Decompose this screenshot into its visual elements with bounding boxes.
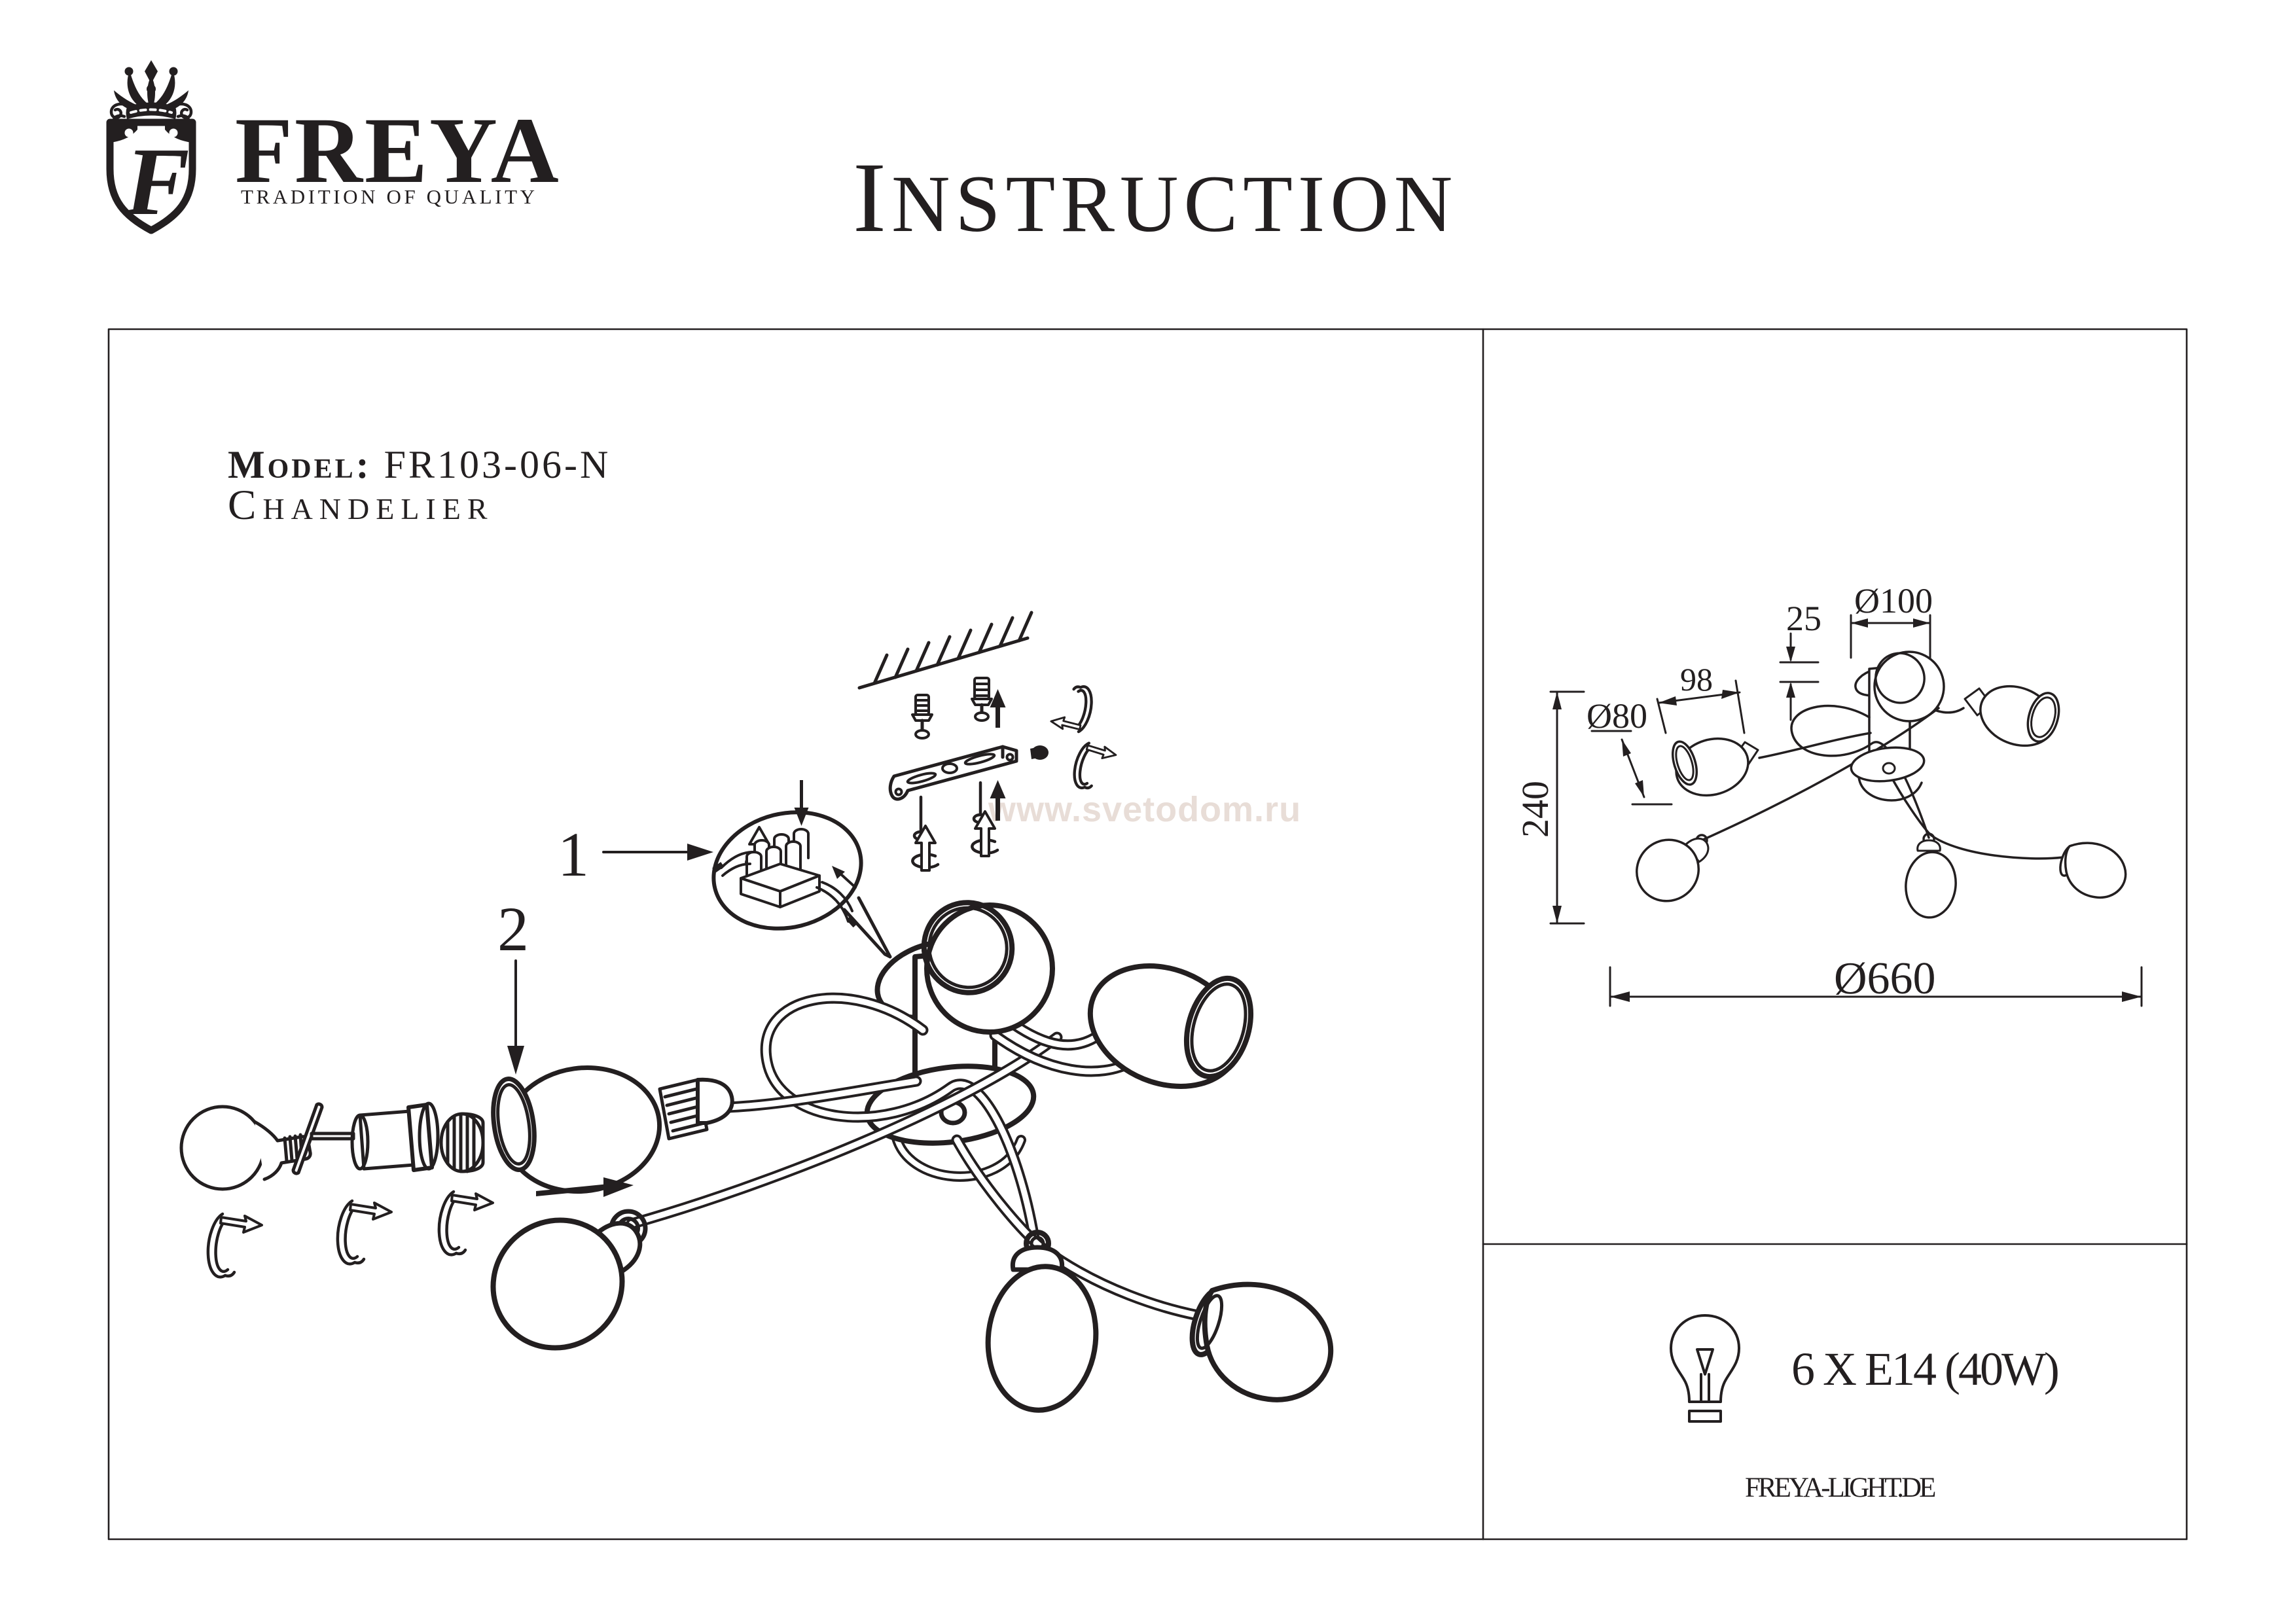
svg-text:25: 25 xyxy=(1786,599,1821,638)
svg-text:2: 2 xyxy=(497,894,529,964)
svg-text:1: 1 xyxy=(558,819,589,889)
svg-text:240: 240 xyxy=(1514,781,1556,838)
svg-text:F: F xyxy=(124,128,190,236)
svg-text:Ø80: Ø80 xyxy=(1587,696,1647,736)
svg-text:Ø100: Ø100 xyxy=(1854,581,1933,620)
svg-text:Ø660: Ø660 xyxy=(1834,954,1936,1004)
svg-text:98: 98 xyxy=(1680,661,1713,698)
